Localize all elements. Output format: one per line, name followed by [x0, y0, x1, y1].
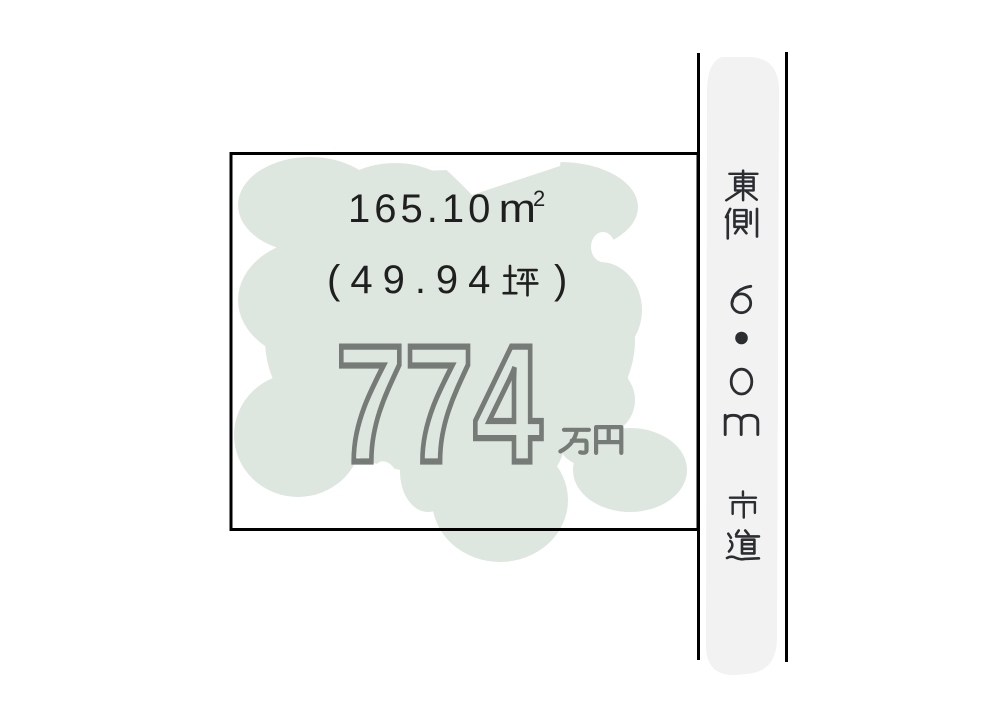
svg-text:2: 2 [533, 186, 545, 211]
svg-text:774: 774 [336, 311, 542, 497]
svg-text:m: m [499, 186, 536, 230]
svg-text:165.10: 165.10 [348, 187, 494, 231]
svg-text:(49.94: (49.94 [327, 258, 500, 302]
svg-text:): ) [554, 258, 567, 302]
